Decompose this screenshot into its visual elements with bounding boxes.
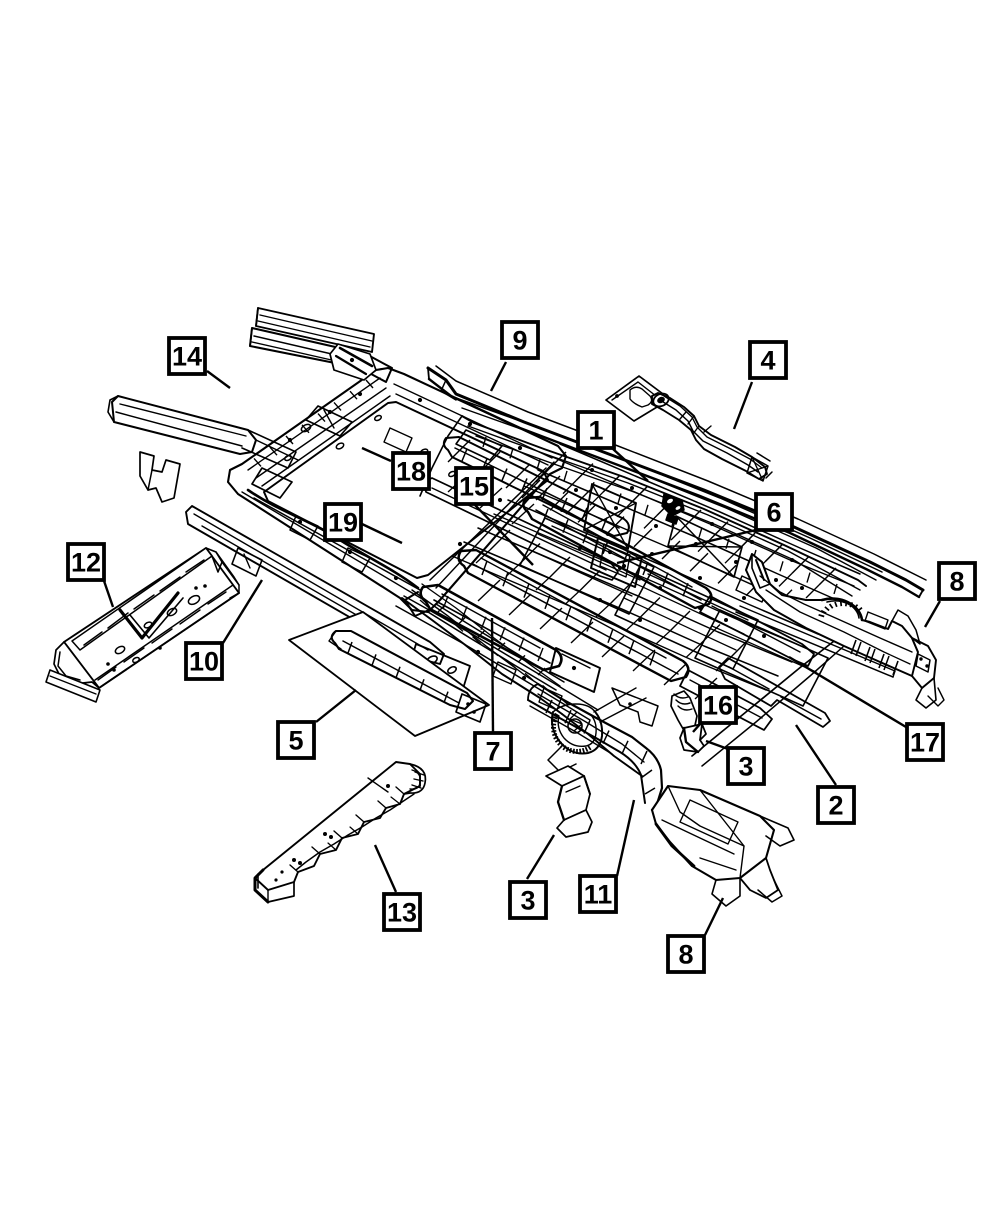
svg-text:5: 5 [288,726,303,756]
svg-text:8: 8 [678,940,693,970]
svg-text:4: 4 [760,346,775,376]
svg-text:8: 8 [949,567,964,597]
svg-text:19: 19 [328,508,358,538]
svg-text:18: 18 [396,457,426,487]
svg-text:9: 9 [512,326,527,356]
svg-text:13: 13 [387,898,417,928]
svg-text:17: 17 [910,728,940,758]
svg-text:16: 16 [703,691,733,721]
svg-text:11: 11 [584,880,613,910]
svg-text:10: 10 [189,647,219,677]
svg-text:3: 3 [520,886,535,916]
svg-text:6: 6 [766,498,781,528]
svg-text:1: 1 [588,416,603,446]
svg-text:15: 15 [459,472,489,502]
svg-text:14: 14 [172,342,202,372]
svg-text:7: 7 [485,737,500,767]
svg-text:2: 2 [828,791,843,821]
svg-text:12: 12 [71,548,101,578]
svg-text:3: 3 [738,752,753,782]
